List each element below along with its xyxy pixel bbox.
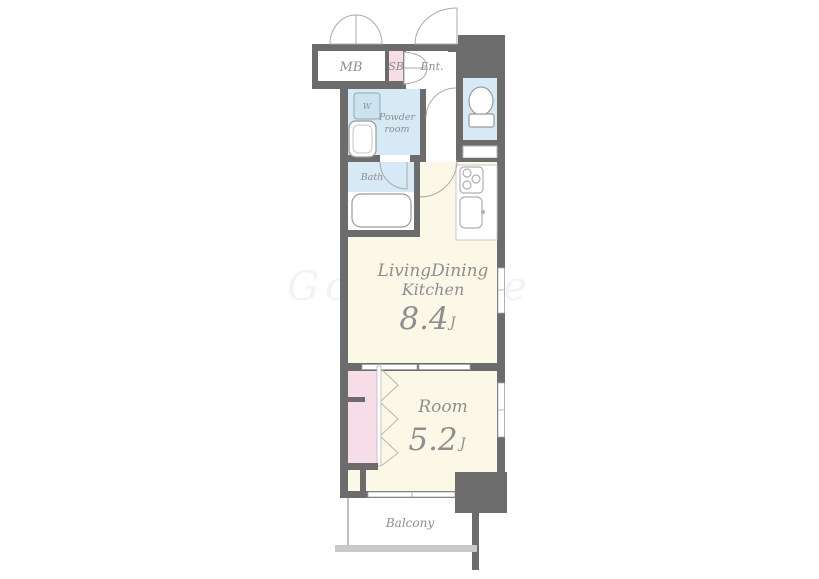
toilet-icon [469,87,494,127]
pillar-bottom-right [455,472,507,513]
sliding-door-icon [419,365,470,370]
balcony-window-icon [368,492,412,497]
ldk-size-value: 8.4 [399,301,448,337]
wall-bath-right [414,155,420,237]
wall-closet-divider [348,397,365,402]
balcony-rail [335,545,477,552]
bath-label: Bath [360,172,384,183]
wall-powder-hall [420,89,426,155]
closet-door-track [377,366,381,466]
balcony-window-icon [412,492,455,497]
wall [456,140,505,146]
mb-label: MB [339,60,363,75]
balcony-label: Balcony [385,516,434,530]
powder-room-label: Powder [378,112,417,123]
wall-niche [360,470,366,494]
wall-left [340,81,348,491]
sliding-door-icon [362,365,417,370]
balcony-edge-left [347,498,349,545]
bathtub-icon [352,194,411,227]
storage-box [463,146,497,158]
balcony-divider [472,513,479,570]
vanity-sink-icon [349,121,376,157]
wall-bath-bottom [340,230,420,237]
room-size-value: 5.2 [408,422,457,458]
floor-plan: GooHoMe [0,0,819,579]
closet-floor [348,371,377,463]
sb-label: SB [388,60,404,73]
kitchen-sink-icon [460,197,485,228]
room-label: Room [417,397,467,417]
washer-label: W [363,102,372,111]
floor-plan-drawing: GooHoMe [0,0,819,579]
entrance-label: Ent. [419,60,443,73]
wall-closet-bottom [340,463,378,470]
ldk-label: LivingDining [377,261,489,281]
pillar-top-right [458,35,505,78]
powder-room-label: room [385,124,410,135]
stove-icon [460,167,483,193]
ldk-label: Kitchen [401,280,465,299]
